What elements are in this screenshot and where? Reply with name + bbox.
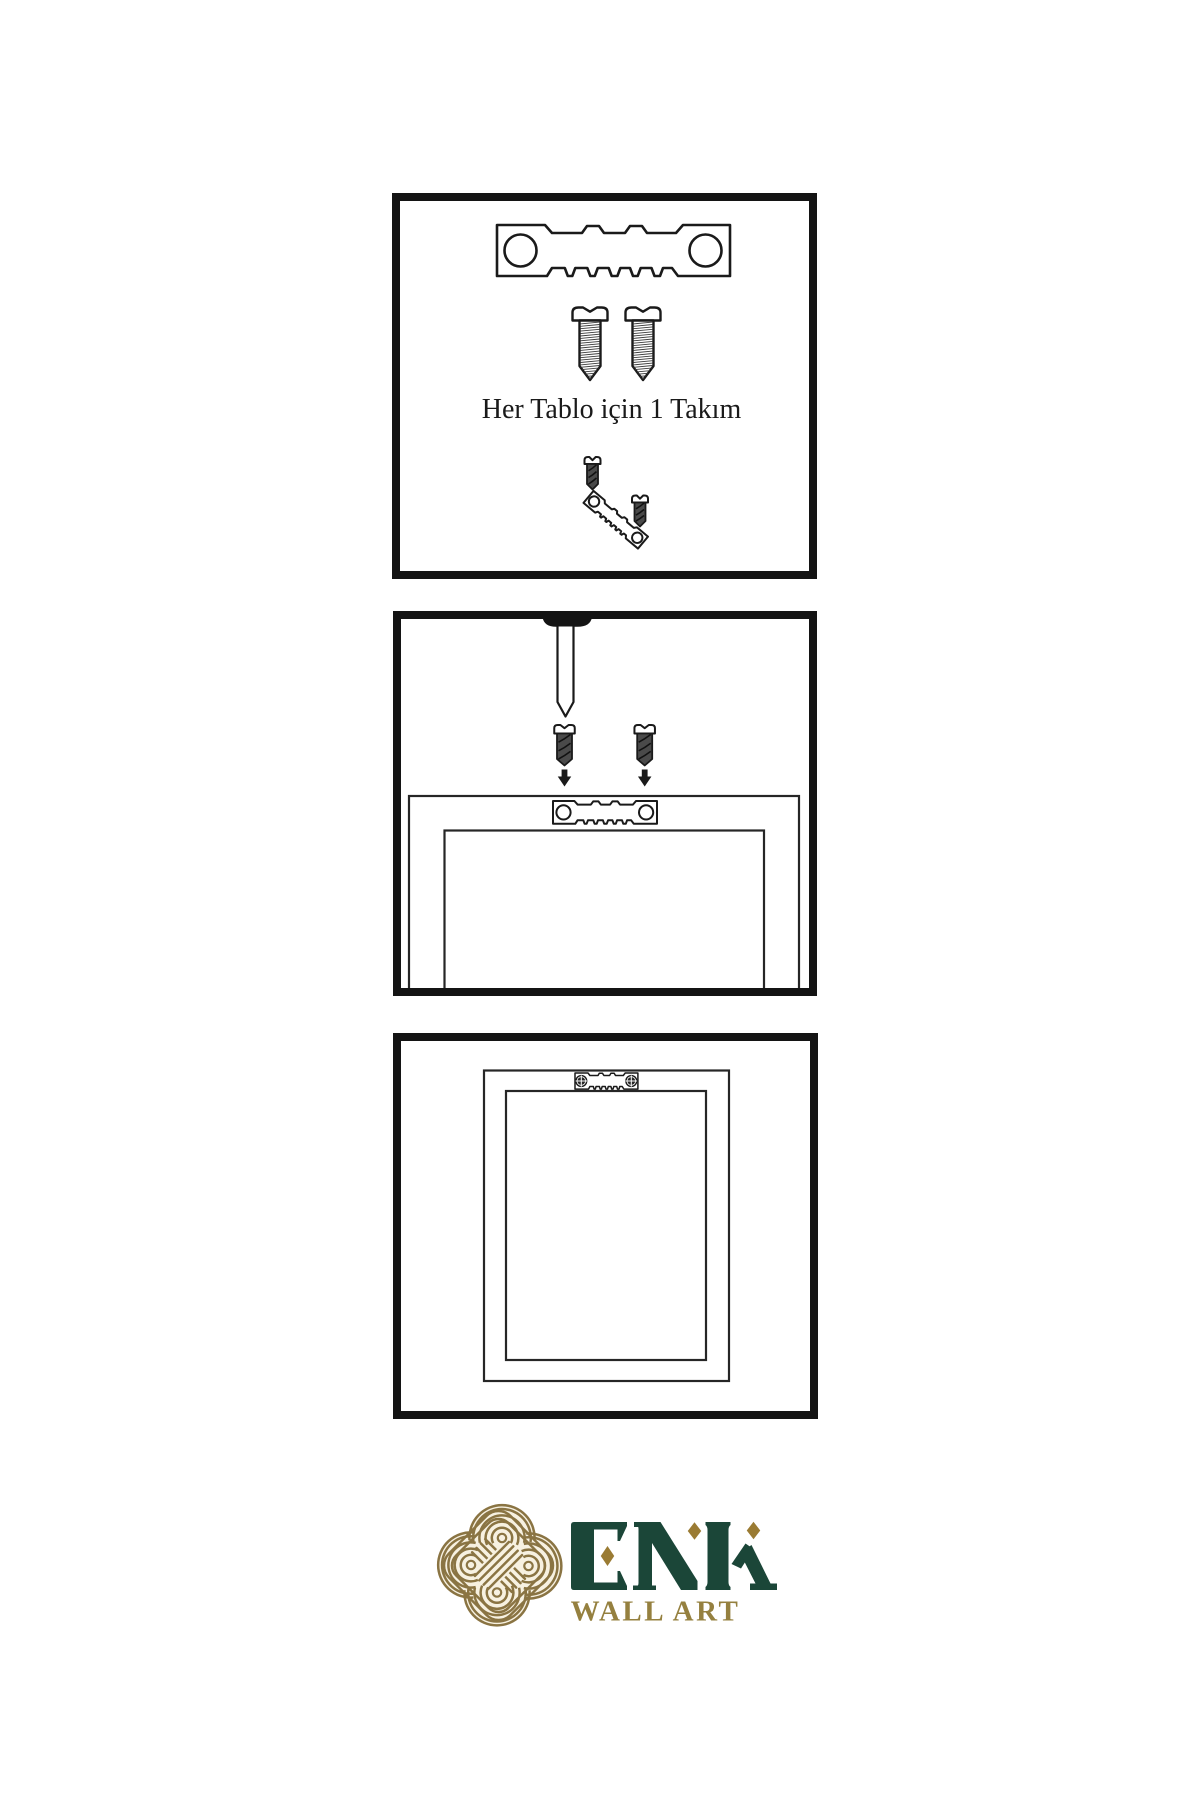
svg-text:Her Tablo için 1 Takım: Her Tablo için 1 Takım bbox=[482, 394, 742, 425]
svg-text:WALL ART: WALL ART bbox=[571, 1596, 741, 1628]
